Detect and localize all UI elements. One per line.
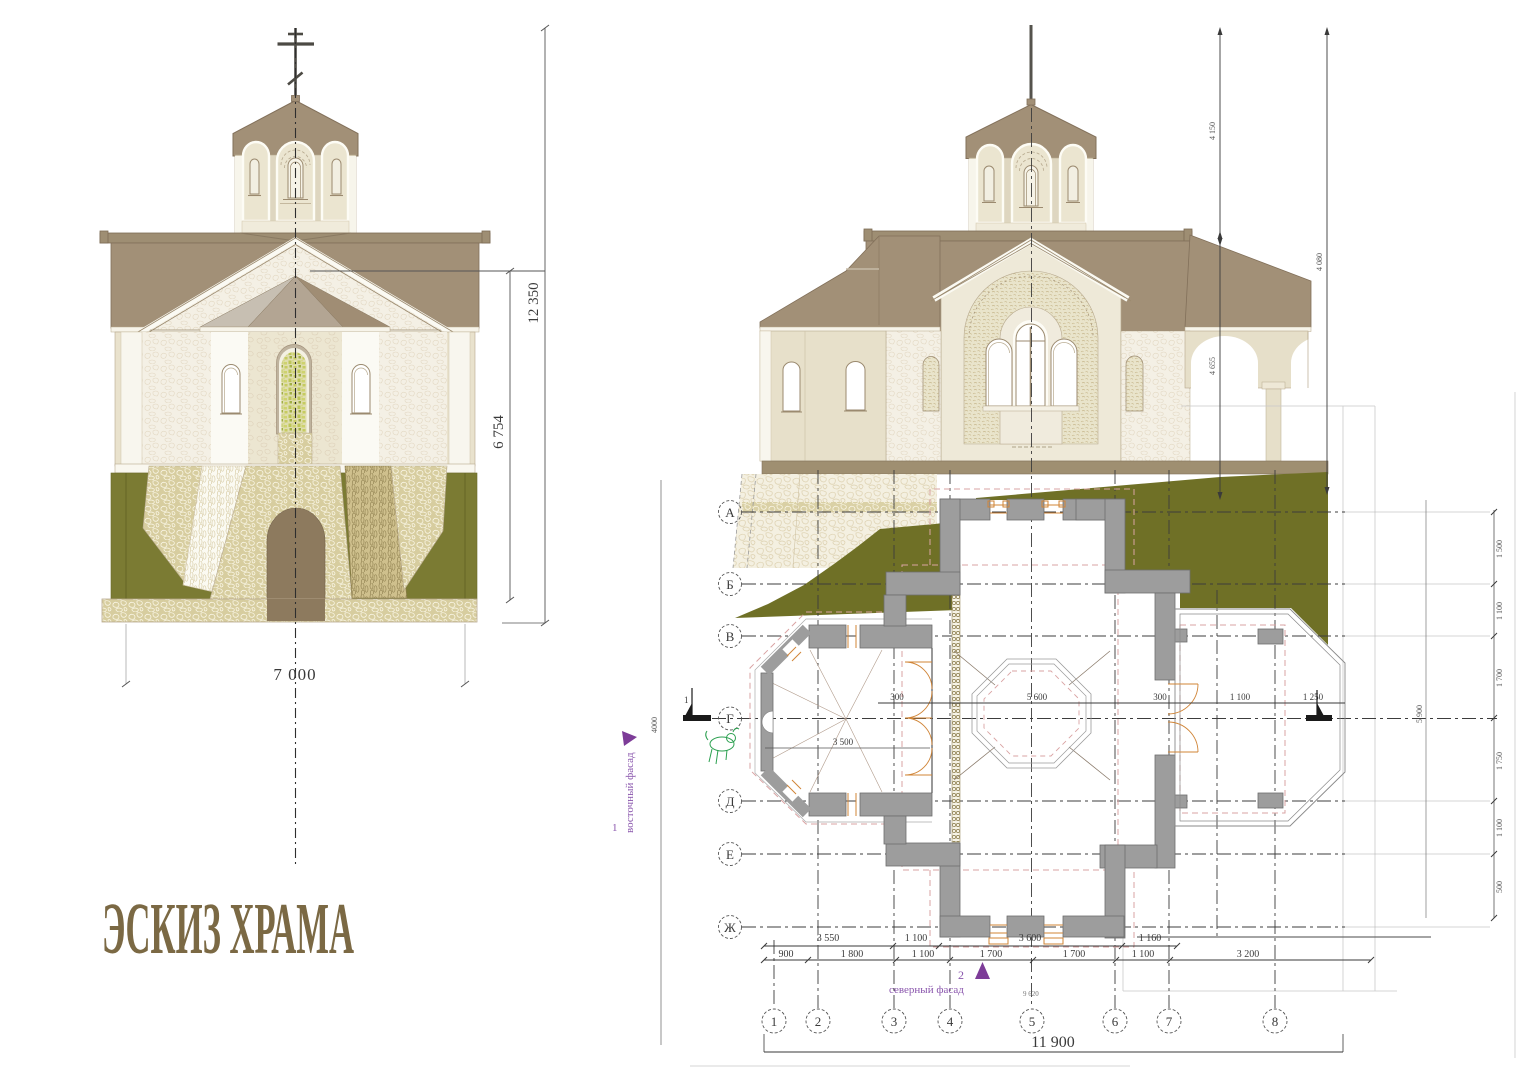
svg-text:3 500: 3 500 [833,737,854,747]
svg-text:300: 300 [1153,692,1167,702]
svg-text:1: 1 [684,695,689,705]
svg-text:В: В [726,629,735,644]
svg-text:4 080: 4 080 [1315,253,1324,271]
svg-text:1 500: 1 500 [1495,540,1504,558]
svg-text:4: 4 [947,1014,954,1029]
svg-text:восточный фасад: восточный фасад [624,752,636,833]
svg-text:4 150: 4 150 [1208,122,1217,140]
svg-text:Д: Д [726,794,735,809]
svg-text:А: А [725,505,735,520]
svg-text:900: 900 [779,949,794,960]
svg-text:5 900: 5 900 [1415,705,1424,723]
svg-text:Ж: Ж [724,920,736,935]
svg-text:1 100: 1 100 [1495,819,1504,837]
svg-text:1: 1 [771,1014,778,1029]
svg-text:8: 8 [1272,1014,1279,1029]
svg-text:11 900: 11 900 [1031,1034,1074,1051]
svg-text:1: 1 [612,822,618,834]
svg-text:3 550: 3 550 [817,933,840,944]
svg-text:ЭСКИЗ ХРАМА: ЭСКИЗ ХРАМА [102,889,354,970]
svg-text:1 700: 1 700 [1495,669,1504,687]
svg-text:1 700: 1 700 [1063,949,1086,960]
svg-text:1 700: 1 700 [980,949,1003,960]
svg-text:3: 3 [891,1014,898,1029]
svg-text:3 600: 3 600 [1019,933,1042,944]
svg-text:1 800: 1 800 [841,949,864,960]
svg-text:Е: Е [726,847,734,862]
svg-text:1 100: 1 100 [905,933,928,944]
svg-text:Б: Б [726,577,733,592]
svg-text:1 160: 1 160 [1139,933,1162,944]
svg-text:Г: Г [726,711,734,726]
svg-text:300: 300 [890,692,904,702]
svg-text:7 000: 7 000 [273,665,316,684]
svg-text:500: 500 [1495,881,1504,893]
svg-text:7: 7 [1166,1014,1173,1029]
svg-text:5 600: 5 600 [1027,692,1048,702]
svg-text:1 100: 1 100 [1495,602,1504,620]
svg-text:4000: 4000 [650,717,659,733]
svg-text:5: 5 [1029,1014,1036,1029]
svg-text:1 100: 1 100 [1230,692,1251,702]
svg-text:2: 2 [958,968,964,982]
svg-text:1 750: 1 750 [1495,752,1504,770]
svg-text:9 620: 9 620 [1023,990,1039,998]
svg-text:6 754: 6 754 [491,415,507,449]
svg-text:2: 2 [815,1014,822,1029]
svg-text:1 100: 1 100 [912,949,935,960]
svg-text:1 250: 1 250 [1303,692,1324,702]
svg-text:северный фасад: северный фасад [889,984,964,996]
svg-text:6: 6 [1112,1014,1119,1029]
svg-text:4 655: 4 655 [1208,357,1217,375]
svg-text:12 350: 12 350 [526,282,542,323]
svg-text:3 200: 3 200 [1237,949,1260,960]
svg-text:1 100: 1 100 [1132,949,1155,960]
